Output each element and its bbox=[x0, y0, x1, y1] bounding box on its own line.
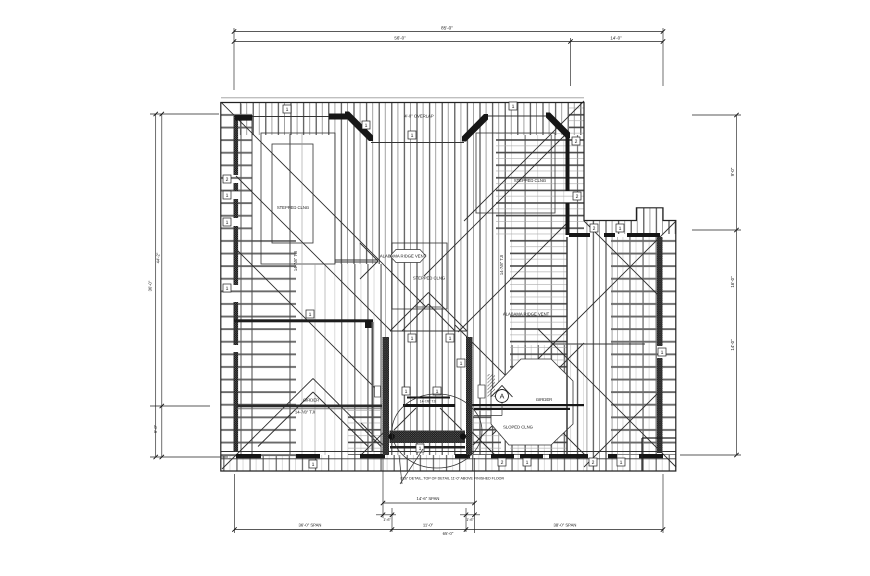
svg-text:SLOPED CLNG: SLOPED CLNG bbox=[503, 425, 533, 430]
svg-text:14-7/8" TJI: 14-7/8" TJI bbox=[295, 410, 315, 415]
svg-text:65'-0": 65'-0" bbox=[443, 531, 454, 536]
svg-text:1: 1 bbox=[365, 123, 368, 129]
svg-text:14'-0": 14'-0" bbox=[610, 36, 622, 41]
svg-text:A: A bbox=[500, 394, 505, 401]
svg-text:1: 1 bbox=[449, 336, 452, 342]
svg-text:9'-0": 9'-0" bbox=[153, 424, 158, 433]
svg-text:1'-6": 1'-6" bbox=[383, 518, 391, 522]
svg-text:1: 1 bbox=[460, 361, 463, 367]
svg-text:1: 1 bbox=[526, 460, 529, 466]
svg-text:36'-0" SPAN: 36'-0" SPAN bbox=[299, 523, 322, 528]
svg-text:1: 1 bbox=[419, 446, 422, 452]
svg-text:1: 1 bbox=[512, 104, 515, 110]
svg-text:STEPPED CLNG: STEPPED CLNG bbox=[413, 276, 445, 281]
svg-text:2: 2 bbox=[575, 139, 578, 145]
svg-text:1: 1 bbox=[411, 336, 414, 342]
svg-text:2: 2 bbox=[592, 460, 595, 466]
svg-text:1'-6": 1'-6" bbox=[466, 518, 474, 522]
svg-text:1: 1 bbox=[286, 107, 289, 113]
svg-text:14'-0": 14'-0" bbox=[730, 339, 735, 351]
svg-text:1: 1 bbox=[309, 312, 312, 318]
svg-text:1: 1 bbox=[226, 286, 229, 292]
svg-text:ALABAMA RIDGE VENT: ALABAMA RIDGE VENT bbox=[380, 254, 427, 259]
svg-text:1: 1 bbox=[411, 133, 414, 139]
svg-text:9'-0": 9'-0" bbox=[730, 167, 735, 176]
svg-text:1: 1 bbox=[405, 389, 408, 395]
svg-text:11'-0": 11'-0" bbox=[423, 523, 434, 528]
svg-text:14'-6" SPAN: 14'-6" SPAN bbox=[417, 496, 440, 501]
svg-text:STEPPED CLNG: STEPPED CLNG bbox=[514, 178, 546, 183]
svg-text:1: 1 bbox=[226, 220, 229, 226]
svg-text:14-7/8" TJI: 14-7/8" TJI bbox=[293, 251, 298, 271]
svg-text:16'-0": 16'-0" bbox=[730, 276, 735, 288]
svg-text:1: 1 bbox=[619, 226, 622, 232]
svg-text:4'-0" OVERLAP: 4'-0" OVERLAP bbox=[404, 114, 433, 119]
svg-text:44'-2": 44'-2" bbox=[156, 252, 161, 263]
svg-text:2: 2 bbox=[576, 194, 579, 200]
svg-text:14-7/8" TJI: 14-7/8" TJI bbox=[420, 400, 436, 404]
svg-text:2: 2 bbox=[226, 177, 229, 183]
svg-text:GIRDER: GIRDER bbox=[303, 398, 319, 403]
svg-text:1: 1 bbox=[661, 350, 664, 356]
svg-text:1: 1 bbox=[620, 460, 623, 466]
svg-text:1: 1 bbox=[226, 193, 229, 199]
svg-text:ALABAMA RIDGE VENT: ALABAMA RIDGE VENT bbox=[503, 312, 550, 317]
svg-text:7/16" DETAIL, TOP OF DETAIL 11: 7/16" DETAIL, TOP OF DETAIL 11'-0" ABOVE… bbox=[400, 477, 505, 481]
svg-text:56'-0": 56'-0" bbox=[394, 36, 406, 41]
svg-text:STEPPED CLNG: STEPPED CLNG bbox=[277, 205, 309, 210]
svg-text:1: 1 bbox=[312, 462, 315, 468]
svg-text:36'-0": 36'-0" bbox=[148, 280, 153, 291]
svg-text:38'-0" SPAN: 38'-0" SPAN bbox=[554, 523, 577, 528]
svg-text:2: 2 bbox=[501, 460, 504, 466]
svg-text:14-7/8" TJI: 14-7/8" TJI bbox=[499, 255, 504, 275]
svg-text:85'-0": 85'-0" bbox=[441, 26, 453, 31]
svg-text:GIRDER: GIRDER bbox=[536, 397, 552, 402]
svg-text:2: 2 bbox=[593, 226, 596, 232]
